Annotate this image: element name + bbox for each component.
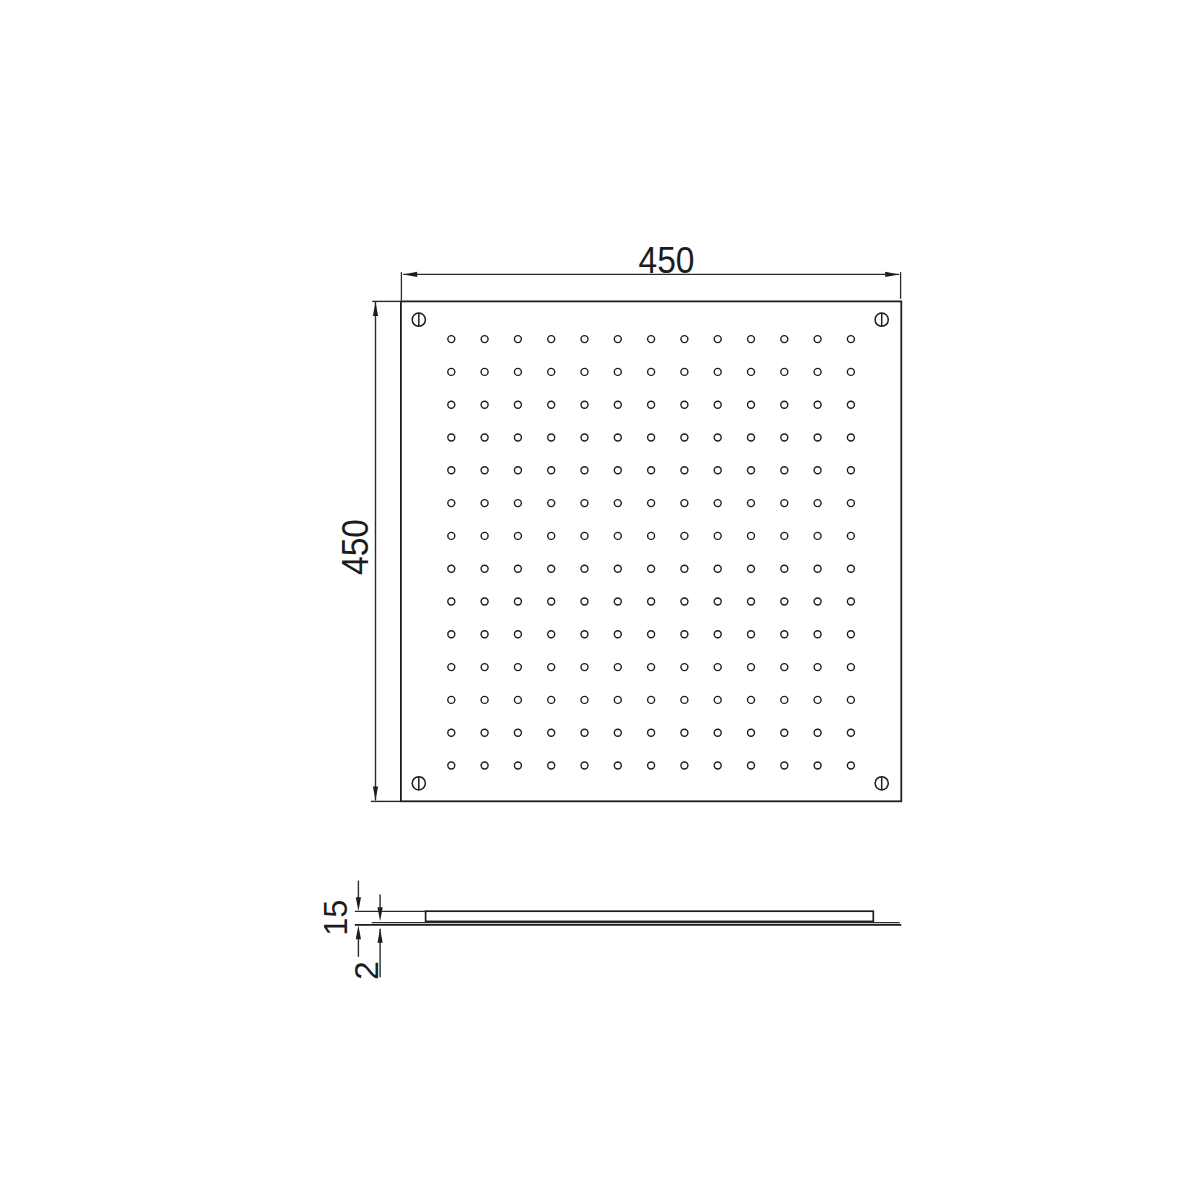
svg-text:15: 15 <box>316 900 354 936</box>
svg-text:2: 2 <box>347 961 385 980</box>
svg-text:450: 450 <box>335 519 376 575</box>
svg-text:450: 450 <box>639 240 695 281</box>
